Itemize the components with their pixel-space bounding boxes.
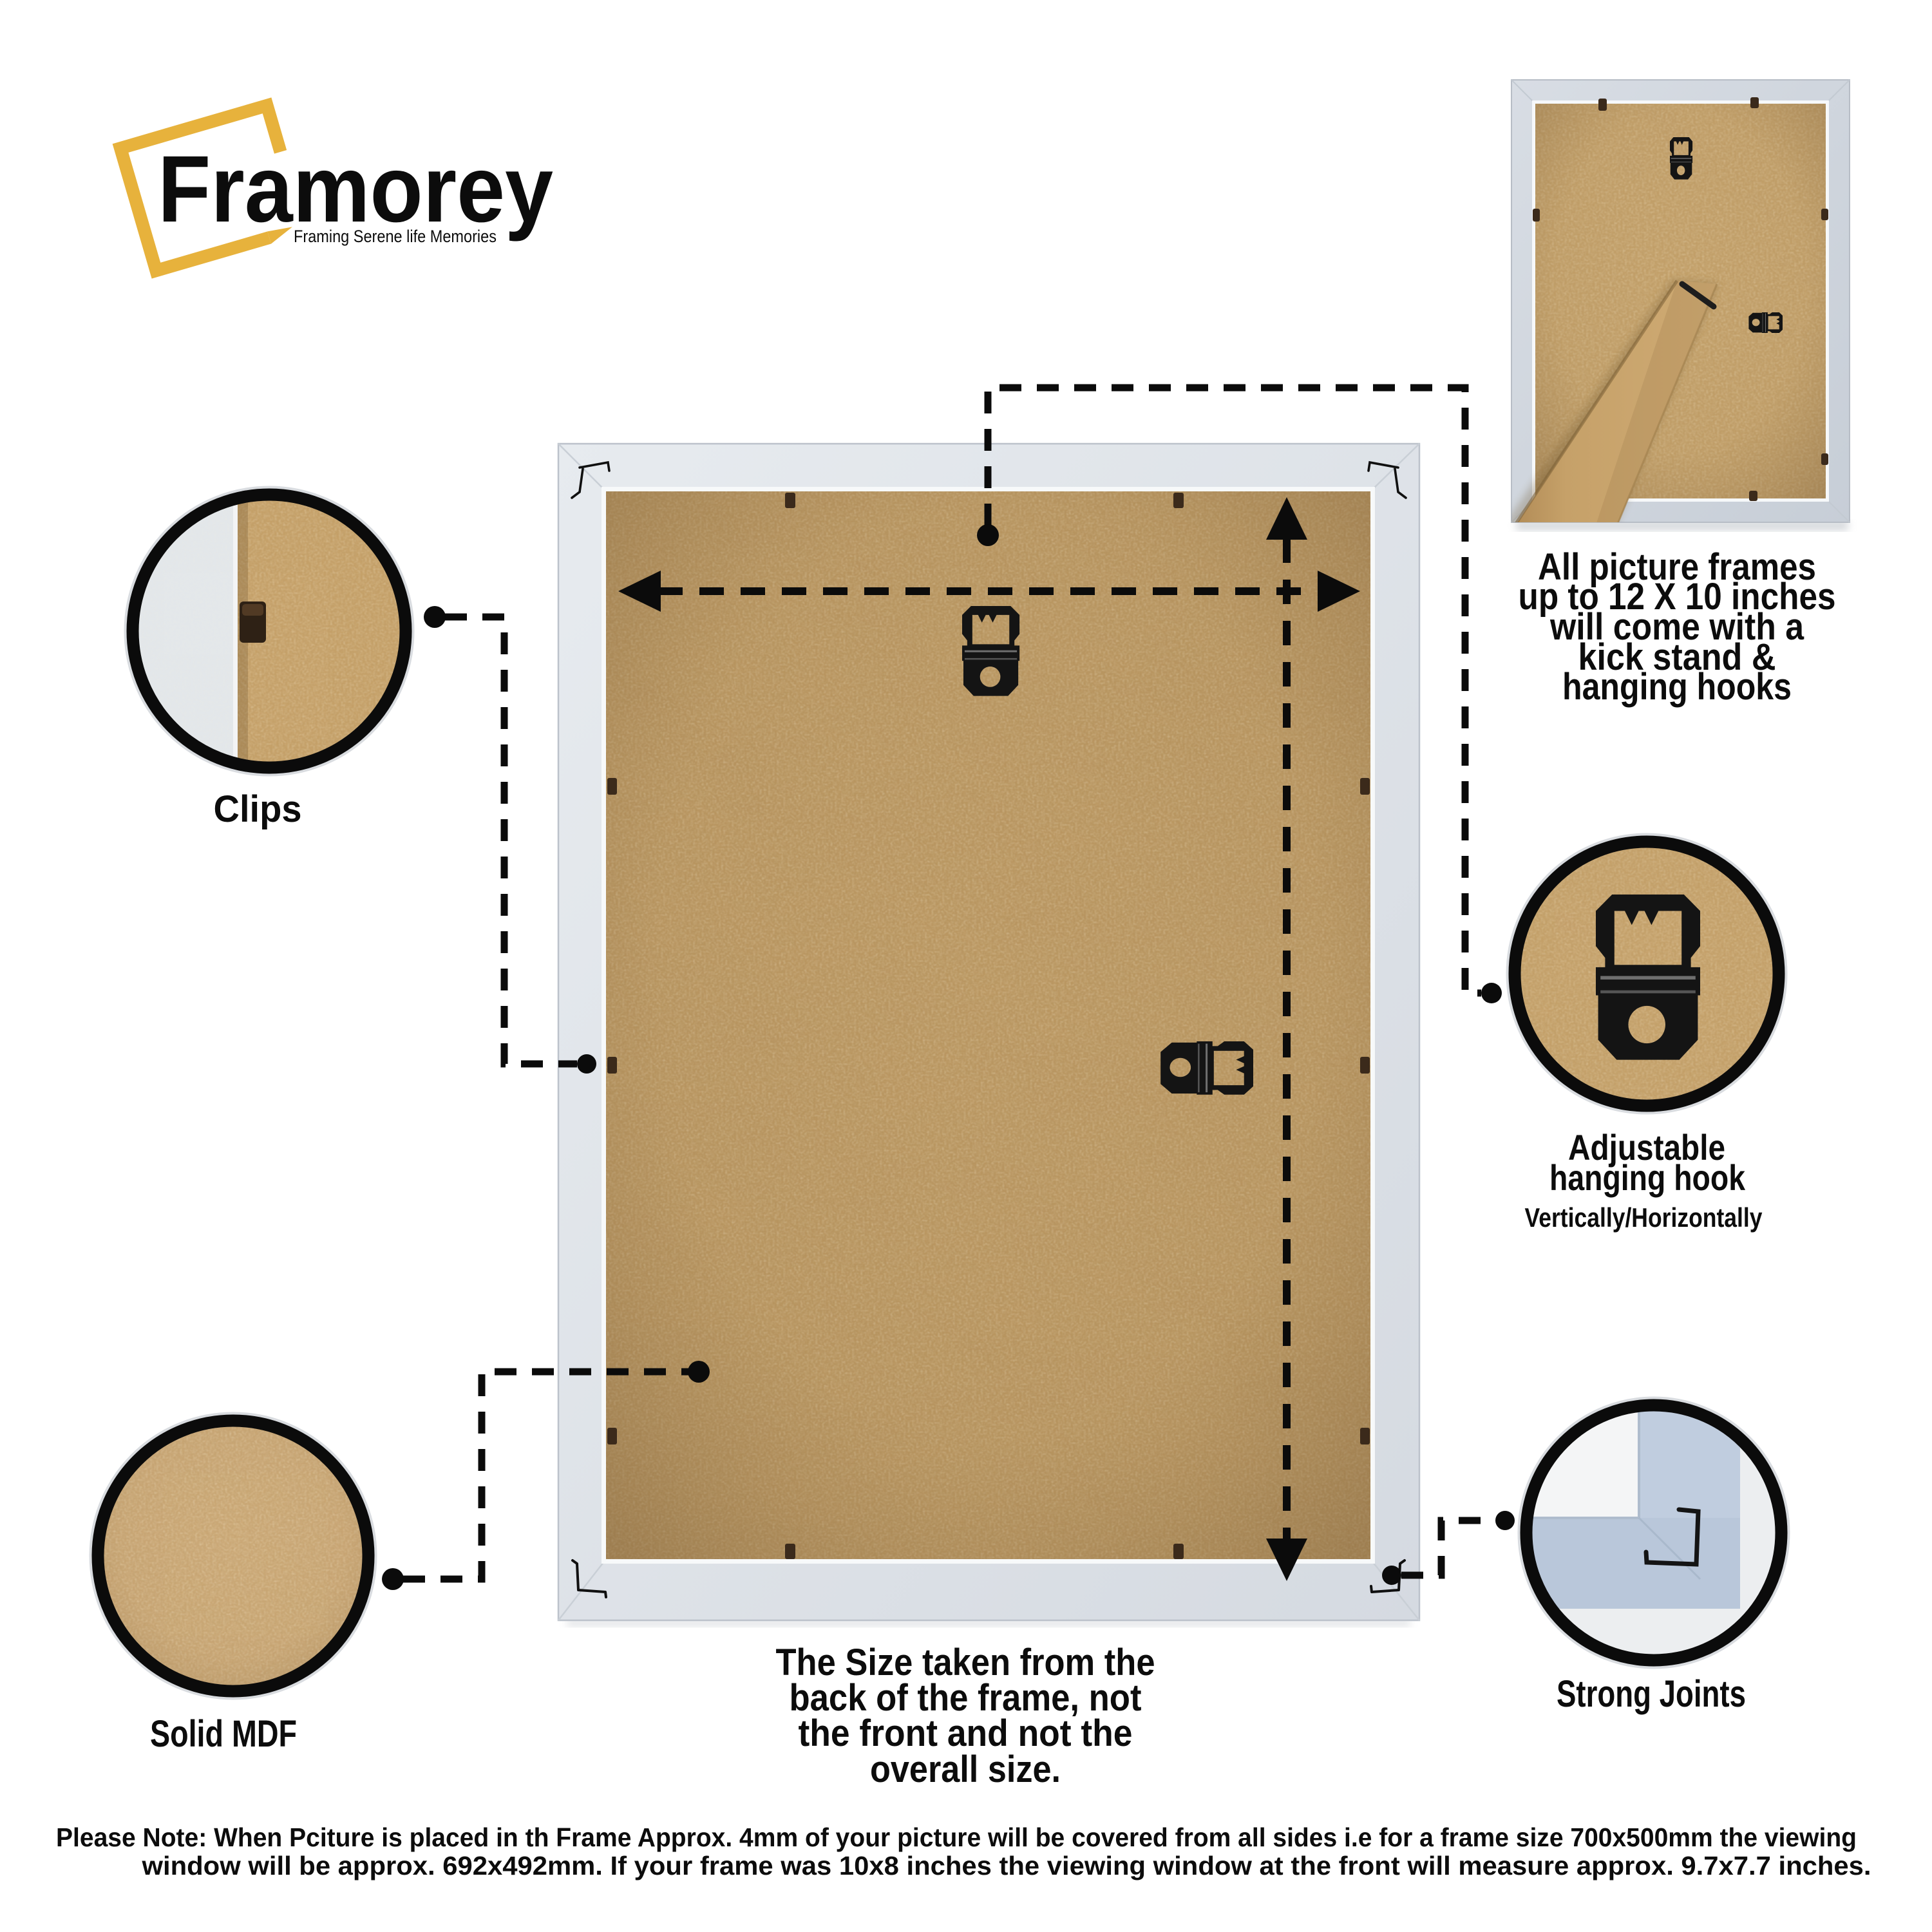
svg-text:Strong Joints: Strong Joints [1557, 1673, 1746, 1715]
svg-text:hanging hooks: hanging hooks [1562, 666, 1792, 708]
svg-text:Solid MDF: Solid MDF [150, 1713, 297, 1755]
svg-text:Vertically/Horizontally: Vertically/Horizontally [1525, 1202, 1763, 1233]
svg-text:Please Note: When Pciture is p: Please Note: When Pciture is placed in t… [56, 1823, 1857, 1852]
svg-text:Framing Serene life Memories: Framing Serene life Memories [294, 227, 497, 246]
svg-text:overall size.: overall size. [870, 1748, 1061, 1790]
svg-text:Clips: Clips [214, 788, 302, 830]
svg-text:window will be approx. 692x492: window will be approx. 692x492mm. If you… [141, 1851, 1871, 1880]
svg-text:hanging hook: hanging hook [1549, 1157, 1746, 1198]
